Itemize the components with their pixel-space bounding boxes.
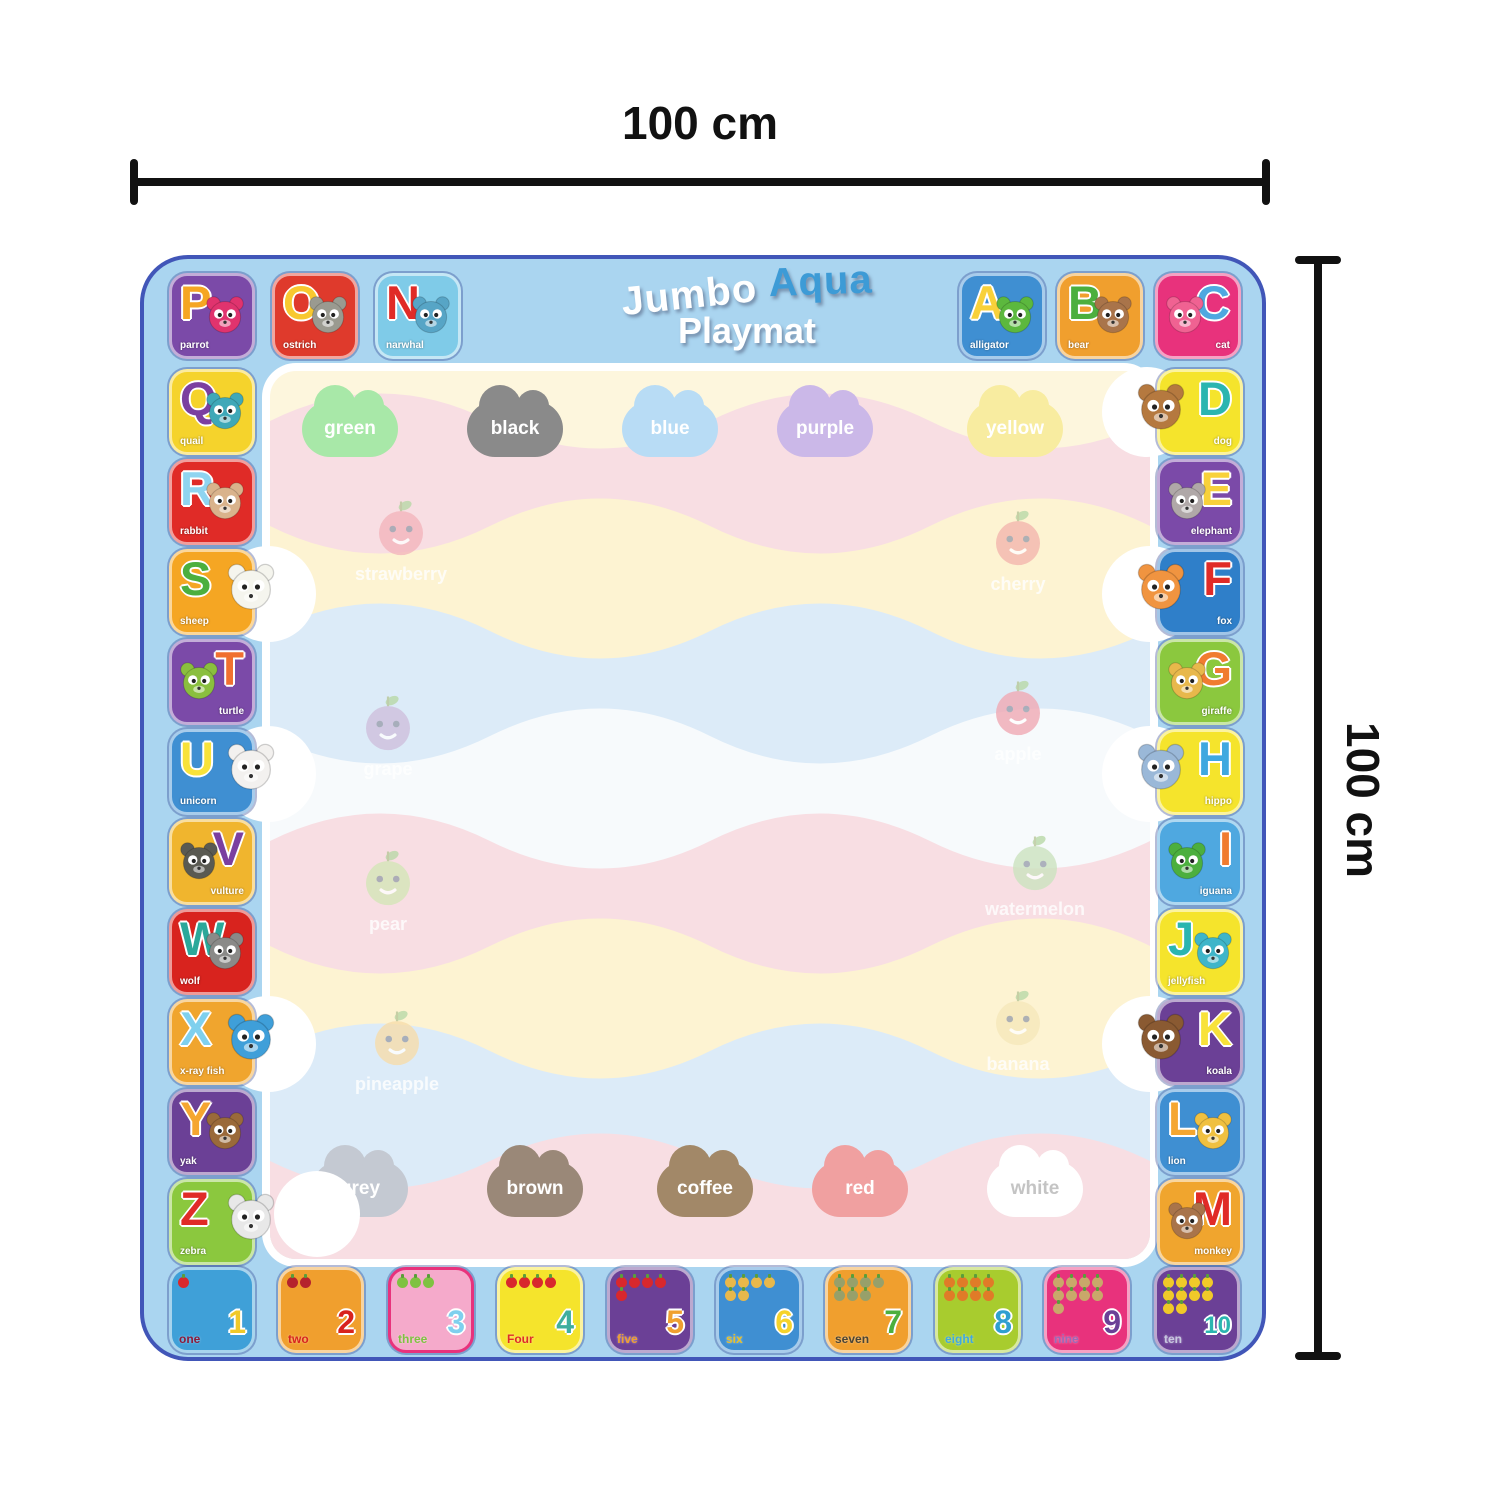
- tile-word: lion: [1168, 1156, 1186, 1167]
- cat-icon: [1160, 290, 1210, 345]
- number-tile-eight: 8eight: [935, 1267, 1021, 1353]
- numeral: 4: [556, 1306, 574, 1338]
- letter-tile-Q: Q quail: [169, 369, 255, 455]
- letter-tile-C: C cat: [1155, 273, 1241, 359]
- tile-word: hippo: [1205, 796, 1232, 807]
- number-tile-one: 1one: [169, 1267, 255, 1353]
- tile-word: wolf: [180, 976, 200, 987]
- tile-word: sheep: [180, 616, 209, 627]
- sheep-icon: [220, 556, 282, 623]
- number-word: seven: [835, 1332, 869, 1346]
- product-title: Jumbo Aqua Playmat: [602, 267, 892, 352]
- unicorn-icon: [220, 736, 282, 803]
- number-tile-seven: 7seven: [825, 1267, 911, 1353]
- tile-word: monkey: [1194, 1246, 1232, 1257]
- koala-icon: [1130, 1006, 1192, 1073]
- vulture-icon: [174, 836, 224, 891]
- bear-icon: [1088, 290, 1138, 345]
- fruit-label: pear: [369, 914, 407, 935]
- fox-icon: [1130, 556, 1192, 623]
- letter-tile-O: O ostrich: [272, 273, 358, 359]
- wolf-icon: [200, 926, 250, 981]
- tile-letter: Z: [180, 1184, 209, 1233]
- iguana-icon: [1162, 836, 1212, 891]
- tile-word: bear: [1068, 340, 1089, 351]
- color-word-blue: blue: [622, 401, 718, 457]
- letter-tile-W: W wolf: [169, 909, 255, 995]
- height-dimension-cap-bottom: [1295, 1352, 1341, 1360]
- letter-tile-I: I iguana: [1157, 819, 1243, 905]
- color-word-white: white: [987, 1161, 1083, 1217]
- letter-tile-U: U unicorn: [169, 729, 255, 815]
- fruit-label: banana: [986, 1054, 1049, 1075]
- fruit-cherry: cherry: [985, 506, 1051, 595]
- green-apple-count-icons: [397, 1277, 453, 1288]
- numeral: 6: [775, 1306, 793, 1338]
- color-word-purple: purple: [777, 401, 873, 457]
- fruit-strawberry: strawberry: [355, 496, 447, 585]
- numeral: 5: [666, 1306, 684, 1338]
- tile-word: rabbit: [180, 526, 208, 537]
- tile-letter: D: [1198, 374, 1232, 423]
- number-tile-four: 4Four: [497, 1267, 583, 1353]
- tile-word: unicorn: [180, 796, 217, 807]
- yak-icon: [200, 1106, 250, 1161]
- carrot-count-icons: [944, 1277, 1000, 1301]
- tile-letter: U: [180, 734, 214, 783]
- tile-word: parrot: [180, 340, 209, 351]
- turtle-icon: [174, 656, 224, 711]
- number-tile-two: 2two: [278, 1267, 364, 1353]
- dog-icon: [1130, 376, 1192, 443]
- numeral: 9: [1103, 1306, 1121, 1338]
- tile-word: quail: [180, 436, 203, 447]
- fruit-pear: pear: [355, 846, 421, 935]
- corn-count-icons: [1163, 1277, 1219, 1314]
- fruit-label: watermelon: [985, 899, 1085, 920]
- number-word: eight: [945, 1332, 974, 1346]
- width-dimension-line: [130, 178, 1270, 186]
- numeral: 8: [994, 1306, 1012, 1338]
- tile-word: cat: [1216, 340, 1230, 351]
- letter-tile-X: X x-ray fish: [169, 999, 255, 1085]
- numeral: 10: [1204, 1314, 1231, 1338]
- number-word: six: [726, 1332, 743, 1346]
- tile-word: alligator: [970, 340, 1009, 351]
- product-image: 100 cm 100 cm greenblackbluepurpleyellow…: [0, 0, 1500, 1500]
- fruit-label: grape: [363, 759, 412, 780]
- numeral: 2: [337, 1306, 355, 1338]
- tile-word: jellyfish: [1168, 976, 1205, 987]
- tile-word: ostrich: [283, 340, 316, 351]
- tile-word: turtle: [219, 706, 244, 717]
- fruit-label: pineapple: [355, 1074, 439, 1095]
- x-ray-fish-icon: [220, 1006, 282, 1073]
- color-word-green: green: [302, 401, 398, 457]
- height-dimension-cap-top: [1295, 256, 1341, 264]
- letter-tile-D: D dog: [1157, 369, 1243, 455]
- number-tile-ten: 10ten: [1154, 1267, 1240, 1353]
- number-word: five: [617, 1332, 638, 1346]
- parrot-icon: [200, 290, 250, 345]
- tile-word: elephant: [1191, 526, 1232, 537]
- letter-tile-J: J jellyfish: [1157, 909, 1243, 995]
- letter-tile-A: A alligator: [959, 273, 1045, 359]
- zebra-icon: [220, 1186, 282, 1253]
- giraffe-icon: [1162, 656, 1212, 711]
- numeral: 3: [447, 1306, 465, 1338]
- fruit-banana: banana: [985, 986, 1051, 1075]
- monkey-icon: [1162, 1196, 1212, 1251]
- letter-tile-P: P parrot: [169, 273, 255, 359]
- apple-count-icons: [616, 1277, 672, 1301]
- narwhal-icon: [406, 290, 456, 345]
- elephant-icon: [1162, 476, 1212, 531]
- title-word-aqua: Aqua: [768, 257, 874, 306]
- color-word-red: red: [812, 1161, 908, 1217]
- tile-word: koala: [1206, 1066, 1232, 1077]
- lion-icon: [1188, 1106, 1238, 1161]
- fruit-pineapple: pineapple: [355, 1006, 439, 1095]
- numeral: 1: [228, 1306, 246, 1338]
- number-tile-six: 6six: [716, 1267, 802, 1353]
- number-word: one: [179, 1332, 200, 1346]
- letter-tile-B: B bear: [1057, 273, 1143, 359]
- fruit-watermelon: watermelon: [985, 831, 1085, 920]
- pineapple-count-icons: [725, 1277, 781, 1301]
- height-dimension-label: 100 cm: [1336, 700, 1390, 900]
- tile-letter: F: [1203, 554, 1232, 603]
- tile-letter: I: [1219, 824, 1232, 873]
- letter-tile-H: H hippo: [1157, 729, 1243, 815]
- number-word: Four: [507, 1332, 534, 1346]
- numeral: 7: [884, 1306, 902, 1338]
- color-word-black: black: [467, 401, 563, 457]
- number-word: nine: [1054, 1332, 1079, 1346]
- tile-word: dog: [1214, 436, 1232, 447]
- color-word-brown: brown: [487, 1161, 583, 1217]
- width-dimension-label: 100 cm: [560, 96, 840, 150]
- number-word: three: [398, 1332, 427, 1346]
- width-dimension-cap-left: [130, 159, 138, 205]
- number-word: ten: [1164, 1332, 1182, 1346]
- ostrich-icon: [303, 290, 353, 345]
- nut-count-icons: [1053, 1277, 1109, 1314]
- tile-word: yak: [180, 1156, 197, 1167]
- bump: [274, 1171, 360, 1257]
- letter-tile-R: R rabbit: [169, 459, 255, 545]
- rabbit-icon: [200, 476, 250, 531]
- letter-tile-F: F fox: [1157, 549, 1243, 635]
- hippo-icon: [1130, 736, 1192, 803]
- playmat: greenblackbluepurpleyellowgreybrowncoffe…: [140, 255, 1266, 1361]
- jellyfish-icon: [1188, 926, 1238, 981]
- tile-word: fox: [1217, 616, 1232, 627]
- fruit-apple: apple: [985, 676, 1051, 765]
- letter-tile-E: E elephant: [1157, 459, 1243, 545]
- alligator-icon: [990, 290, 1040, 345]
- tile-word: x-ray fish: [180, 1066, 224, 1077]
- tile-word: iguana: [1200, 886, 1232, 897]
- color-word-yellow: yellow: [967, 401, 1063, 457]
- letter-tile-Z: Z zebra: [169, 1179, 255, 1265]
- tile-letter: H: [1198, 734, 1232, 783]
- letter-tile-N: N narwhal: [375, 273, 461, 359]
- apple-count-icons: [178, 1277, 234, 1288]
- letter-tile-S: S sheep: [169, 549, 255, 635]
- letter-tile-V: V vulture: [169, 819, 255, 905]
- number-tile-five: 5five: [607, 1267, 693, 1353]
- tile-letter: S: [180, 554, 211, 603]
- fruit-label: strawberry: [355, 564, 447, 585]
- tile-word: vulture: [211, 886, 244, 897]
- fruit-label: apple: [994, 744, 1041, 765]
- number-tile-three: 3three: [388, 1267, 474, 1353]
- fruit-label: cherry: [990, 574, 1045, 595]
- tile-word: narwhal: [386, 340, 424, 351]
- letter-tile-L: L lion: [1157, 1089, 1243, 1175]
- coconut-count-icons: [834, 1277, 890, 1301]
- height-dimension-line: [1314, 256, 1322, 1360]
- mushroom-count-icons: [506, 1277, 562, 1288]
- tile-letter: K: [1198, 1004, 1232, 1053]
- letter-tile-K: K koala: [1157, 999, 1243, 1085]
- color-word-coffee: coffee: [657, 1161, 753, 1217]
- number-tile-nine: 9nine: [1044, 1267, 1130, 1353]
- letter-tile-T: T turtle: [169, 639, 255, 725]
- letter-tile-G: G giraffe: [1157, 639, 1243, 725]
- width-dimension-cap-right: [1262, 159, 1270, 205]
- fruit-grape: grape: [355, 691, 421, 780]
- drawing-area: greenblackbluepurpleyellowgreybrowncoffe…: [262, 363, 1158, 1267]
- quail-icon: [200, 386, 250, 441]
- tile-letter: X: [180, 1004, 211, 1053]
- tile-word: zebra: [180, 1246, 206, 1257]
- letter-tile-M: M monkey: [1157, 1179, 1243, 1265]
- tile-word: giraffe: [1201, 706, 1232, 717]
- letter-tile-Y: Y yak: [169, 1089, 255, 1175]
- cherry-count-icons: [287, 1277, 343, 1288]
- number-word: two: [288, 1332, 309, 1346]
